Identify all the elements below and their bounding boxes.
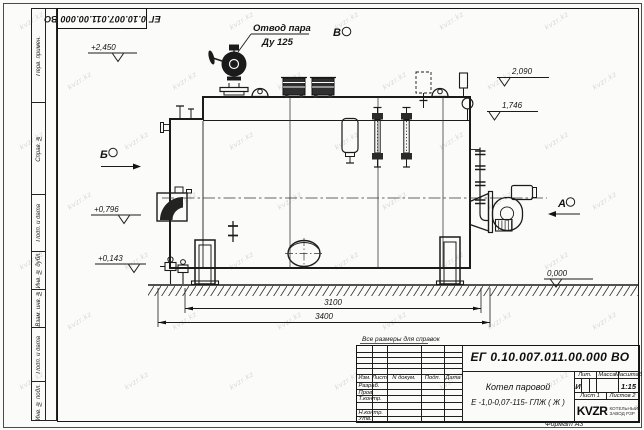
cell-label: Подп. и дата xyxy=(36,204,42,242)
sheet-number: Лист 1 xyxy=(580,393,600,399)
top-stamp-doc-number: ЕГ 0.10.007.011.00.000 ВО xyxy=(44,14,161,24)
header-data: Дата xyxy=(445,375,460,381)
header-izm: Изм. xyxy=(358,375,370,381)
frame-left-column: Перв. примен. Справ. № Подп. и дата Инв.… xyxy=(31,8,57,421)
cell-sprav-no: Справ. № xyxy=(32,103,45,195)
cell-podp-data-2: Подп. и дата xyxy=(32,328,45,382)
header-massa: Масса xyxy=(598,372,615,378)
cell-label: Перв. примен. xyxy=(36,36,42,76)
format-label: Формат А3 xyxy=(545,421,583,428)
left-strip-divider xyxy=(45,9,46,420)
scale-value: 1:15 xyxy=(621,382,636,391)
company-logo: KVZR КОТЕЛЬНЫЙ ЗАВОД РЗР xyxy=(575,400,638,421)
cell-podp-data-1: Подп. и дата xyxy=(32,195,45,252)
logo-subtext: КОТЕЛЬНЫЙ ЗАВОД РЗР xyxy=(609,406,638,416)
cell-label: Взам. инв. № xyxy=(36,290,42,327)
drawing-sheet: kvzr.kzkvzr.kzkvzr.kzkvzr.kzkvzr.kzkvzr.… xyxy=(0,0,644,430)
row-nkontr: Н.контр. xyxy=(359,410,384,416)
logo-text: KVZR xyxy=(577,404,608,418)
header-list: Лист xyxy=(372,375,387,381)
logo-sub-line2: ЗАВОД РЗР xyxy=(609,411,638,416)
header-scale: Масштаб xyxy=(615,372,642,378)
row-tkontr: Т.контр. xyxy=(359,396,382,402)
header-podp: Подп. xyxy=(425,375,440,381)
title-doc-number: ЕГ 0.10.007.011.00.000 ВО xyxy=(471,350,630,364)
row-razrab: Разраб. xyxy=(359,383,380,389)
cell-vzam-inv: Взам. инв. № xyxy=(32,290,45,328)
top-stamp-rotated: ЕГ 0.10.007.011.00.000 ВО xyxy=(57,8,147,29)
lit-value: И xyxy=(575,382,580,391)
header-lit: Лит. xyxy=(578,372,592,378)
product-name: Котел паровой xyxy=(486,382,551,392)
header-docum: N докум. xyxy=(392,375,415,381)
cell-label: Справ. № xyxy=(36,135,42,162)
cell-label: Подп. и дата xyxy=(36,336,42,374)
row-prov: Пров. xyxy=(359,390,374,396)
cell-inv-podl: Инв. № подл. xyxy=(32,382,45,422)
cell-inv-dubl: Инв. № дубл. xyxy=(32,252,45,290)
sheet-count: Листов 2 xyxy=(610,393,636,399)
cell-label: Инв. № подл. xyxy=(36,384,42,421)
cell-label: Инв. № дубл. xyxy=(36,252,42,288)
row-utv: Утв. xyxy=(359,416,372,422)
title-block: ЕГ 0.10.007.011.00.000 ВО Котел паровой … xyxy=(356,345,640,423)
cell-perv-primen: Перв. примен. xyxy=(32,9,45,103)
product-model: Е -1,0-0,07-115- ГЛЖ ( Ж ) xyxy=(471,398,565,407)
